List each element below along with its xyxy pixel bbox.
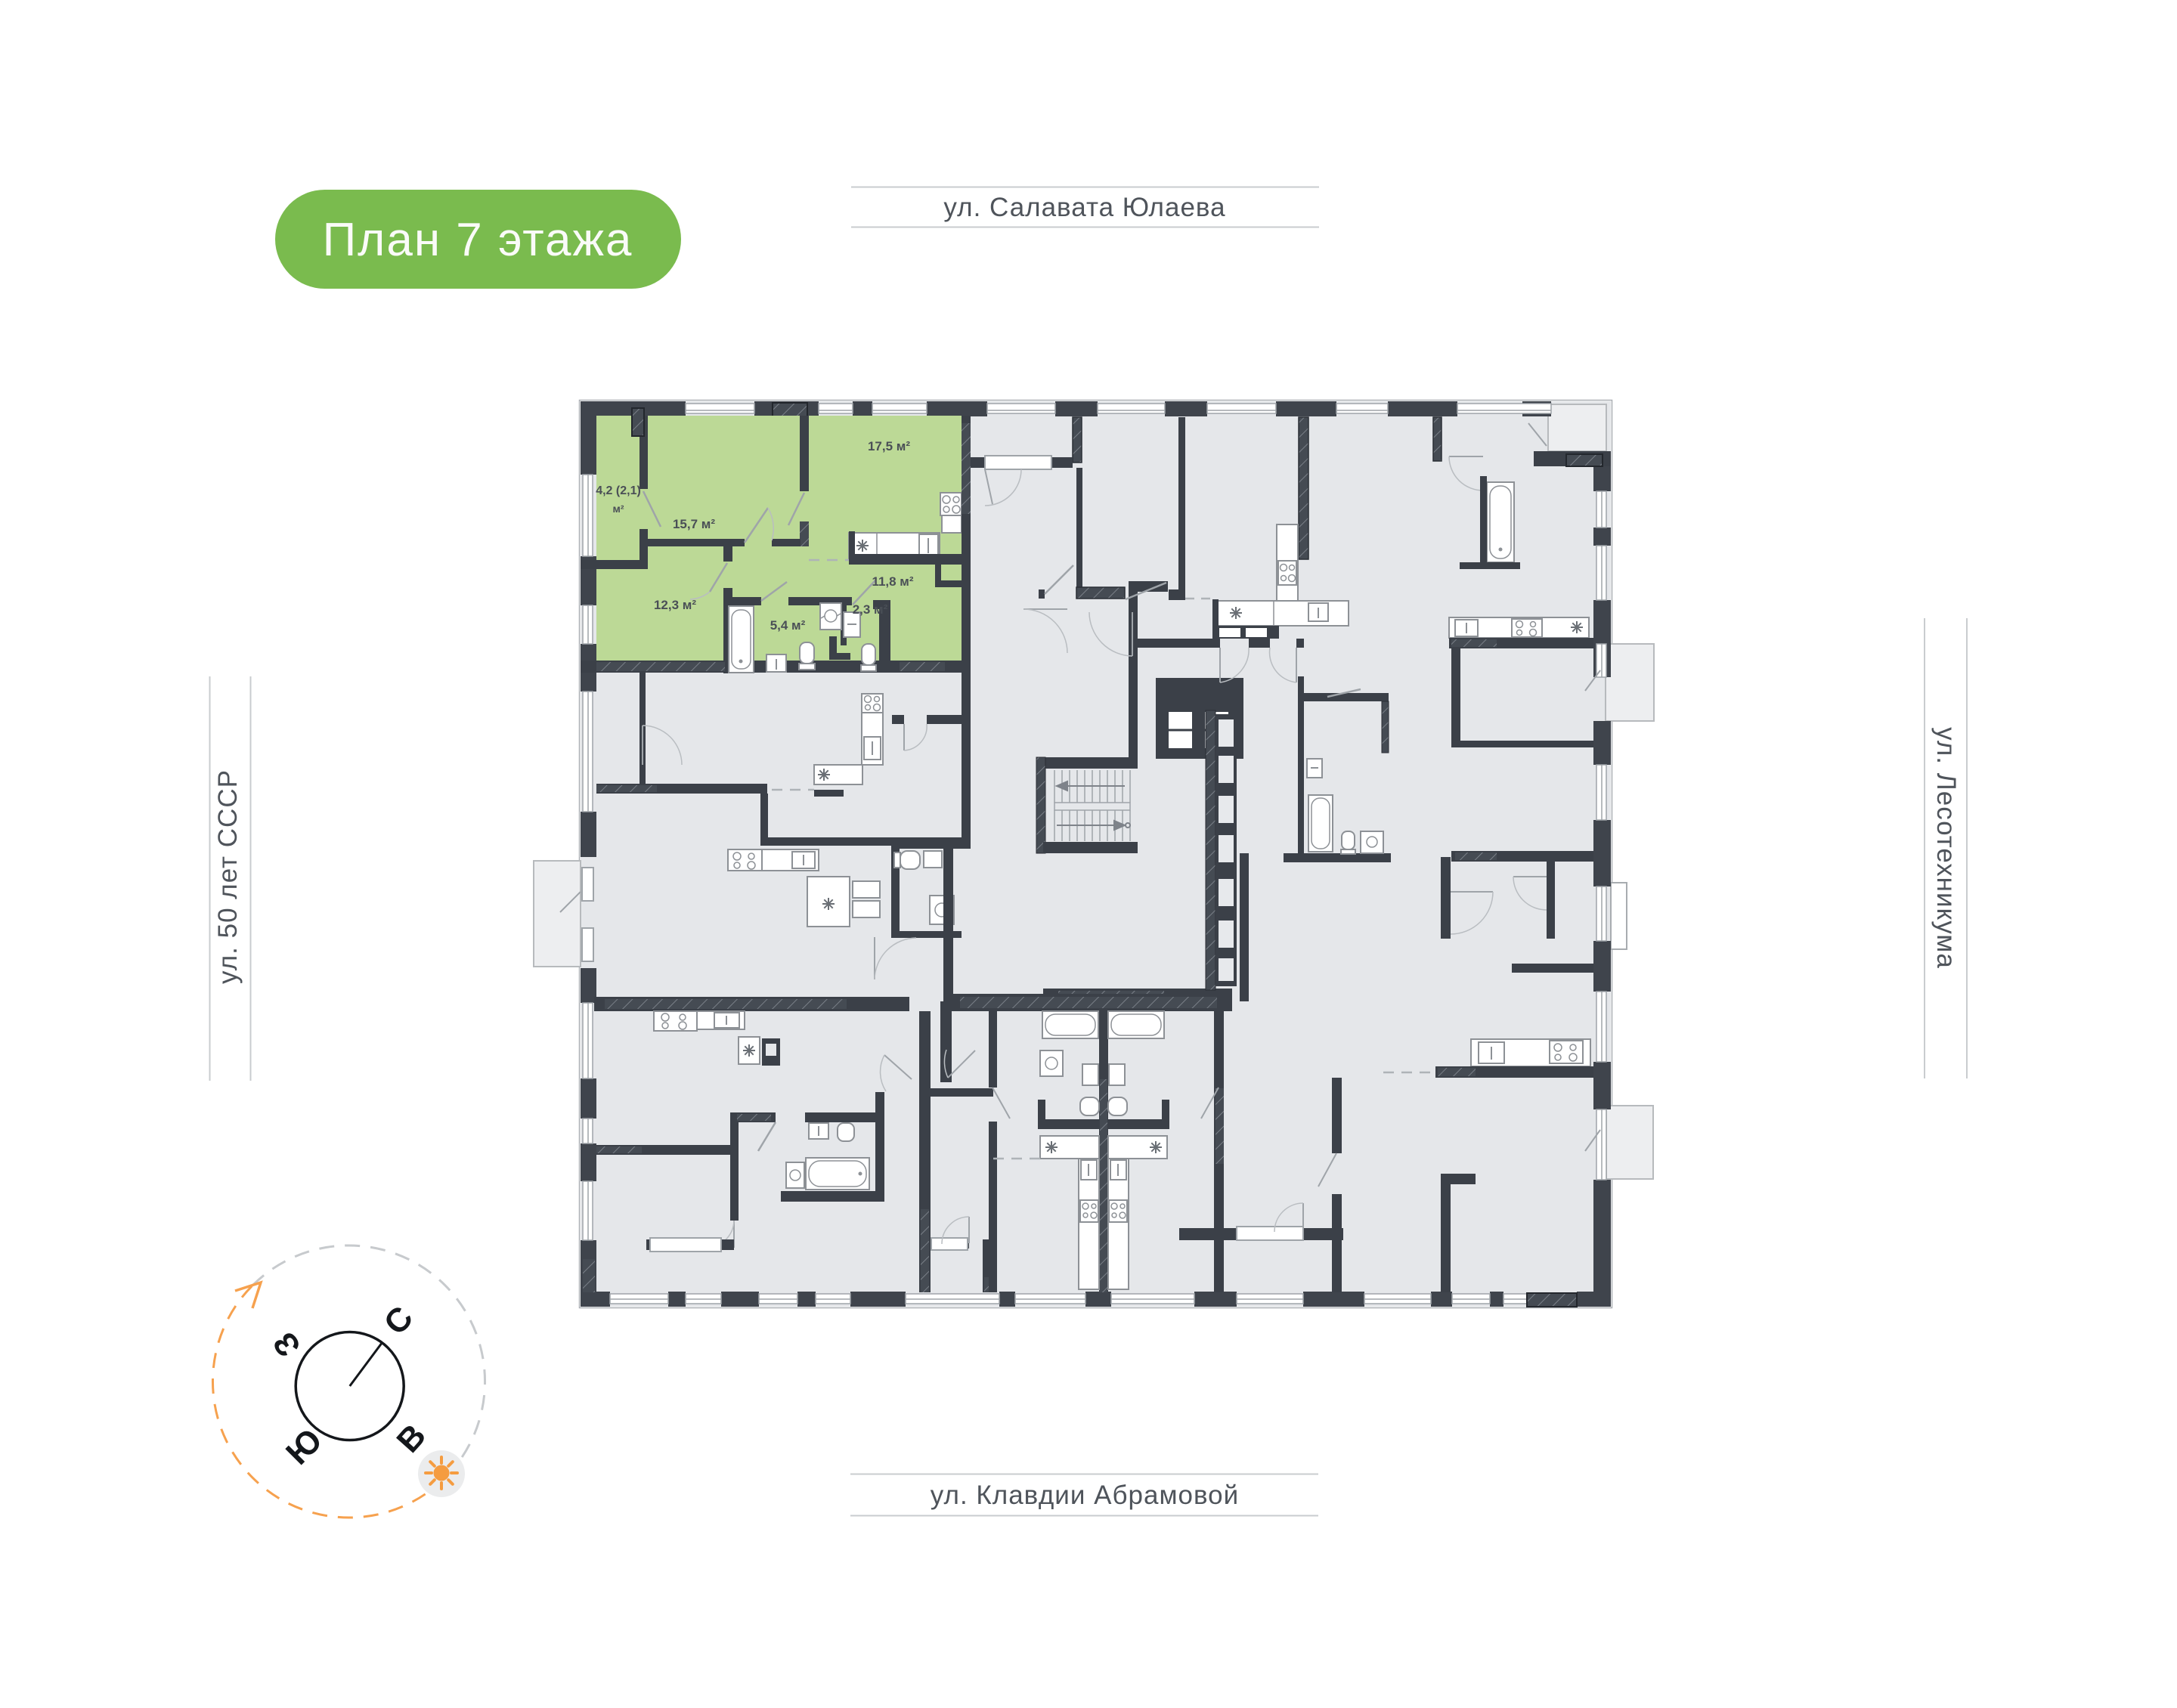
svg-text:ул. Салавата Юлаева: ул. Салавата Юлаева xyxy=(943,193,1225,222)
svg-text:ул. Клавдии Абрамовой: ул. Клавдии Абрамовой xyxy=(931,1481,1239,1510)
svg-text:5,4 м²: 5,4 м² xyxy=(770,618,806,633)
svg-text:План 7 этажа: План 7 этажа xyxy=(323,214,633,266)
svg-text:17,5 м²: 17,5 м² xyxy=(868,439,910,453)
svg-text:15,7 м²: 15,7 м² xyxy=(673,517,715,531)
svg-text:11,8 м²: 11,8 м² xyxy=(872,574,913,589)
svg-text:ул. 50 лет СССР: ул. 50 лет СССР xyxy=(213,769,243,984)
svg-text:12,3 м²: 12,3 м² xyxy=(654,598,696,612)
svg-text:2,3 м²: 2,3 м² xyxy=(853,602,888,617)
svg-text:4,2 (2,1): 4,2 (2,1) xyxy=(596,484,641,497)
svg-text:ул. Лесотехникума: ул. Лесотехникума xyxy=(1931,727,1961,969)
svg-text:м²: м² xyxy=(612,503,624,515)
